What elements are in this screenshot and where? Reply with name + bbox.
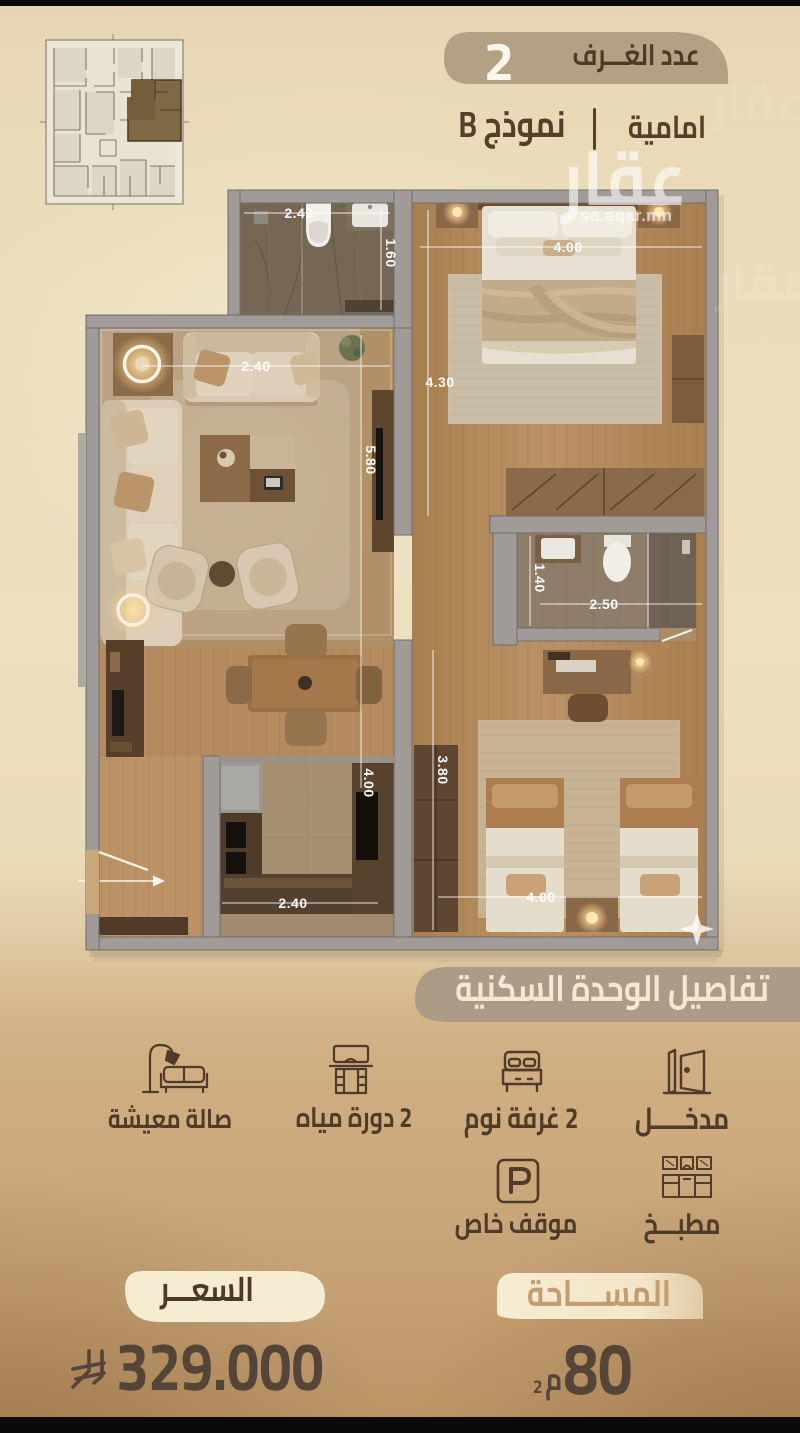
svg-text:1.60: 1.60 — [383, 238, 399, 267]
svg-text:5.80: 5.80 — [363, 445, 379, 474]
svg-text:sa.aqar.mn: sa.aqar.mn — [580, 206, 672, 225]
svg-text:3.80: 3.80 — [435, 755, 451, 784]
svg-text:1.40: 1.40 — [532, 563, 548, 592]
svg-text:2.40: 2.40 — [278, 895, 307, 911]
svg-text:4.00: 4.00 — [526, 889, 555, 905]
svg-text:2.50: 2.50 — [589, 596, 618, 612]
svg-text:4.30: 4.30 — [425, 374, 454, 390]
svg-text:4.00: 4.00 — [553, 239, 582, 255]
svg-text:2.40: 2.40 — [241, 358, 270, 374]
svg-text:2.40: 2.40 — [284, 205, 313, 221]
svg-text:4.00: 4.00 — [361, 768, 377, 797]
